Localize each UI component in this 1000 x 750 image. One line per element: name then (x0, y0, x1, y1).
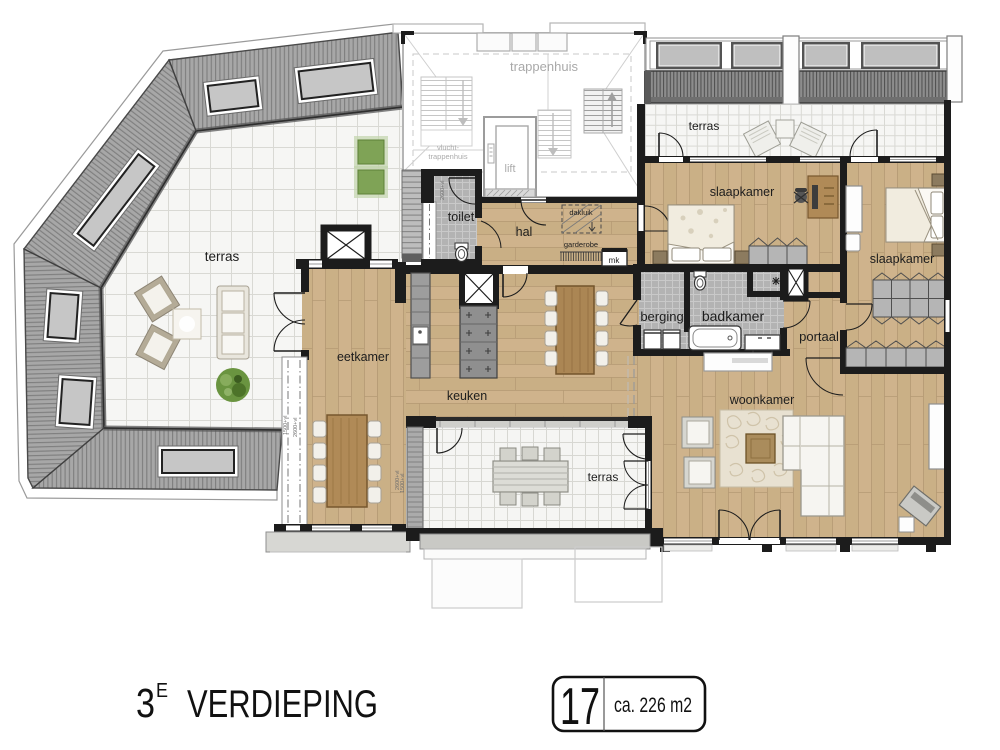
svg-text:vlucht-: vlucht- (437, 143, 460, 152)
svg-text:slaapkamer: slaapkamer (710, 185, 775, 199)
svg-text:woonkamer: woonkamer (729, 393, 795, 407)
svg-text:toilet: toilet (448, 210, 475, 224)
svg-text:trappenhuis: trappenhuis (510, 59, 578, 74)
svg-text:dakluik: dakluik (569, 208, 593, 217)
svg-text:portaal: portaal (799, 329, 839, 344)
svg-text:17: 17 (560, 678, 600, 736)
svg-text:1500+vl: 1500+vl (400, 474, 406, 493)
svg-text:ca. 226 m2: ca. 226 m2 (614, 694, 692, 717)
svg-text:VERDIEPING: VERDIEPING (187, 683, 378, 726)
svg-text:E: E (156, 680, 168, 702)
svg-text:2600+vl: 2600+vl (440, 181, 446, 200)
svg-text:terras: terras (205, 249, 240, 264)
svg-text:lift: lift (505, 163, 516, 175)
svg-text:keuken: keuken (447, 389, 487, 403)
svg-text:1500+vl: 1500+vl (283, 416, 289, 435)
svg-text:2600+vl: 2600+vl (293, 418, 299, 437)
svg-text:berging: berging (640, 309, 683, 324)
svg-text:mk: mk (609, 256, 621, 265)
svg-text:terras: terras (689, 119, 720, 133)
svg-text:hal: hal (516, 225, 533, 239)
svg-text:terras: terras (588, 470, 619, 484)
svg-text:trappenhuis: trappenhuis (428, 152, 467, 161)
svg-text:eetkamer: eetkamer (337, 350, 389, 364)
svg-text:garderobe: garderobe (564, 240, 598, 249)
svg-text:badkamer: badkamer (702, 308, 765, 324)
svg-text:3: 3 (136, 680, 155, 726)
svg-text:slaapkamer: slaapkamer (870, 252, 935, 266)
